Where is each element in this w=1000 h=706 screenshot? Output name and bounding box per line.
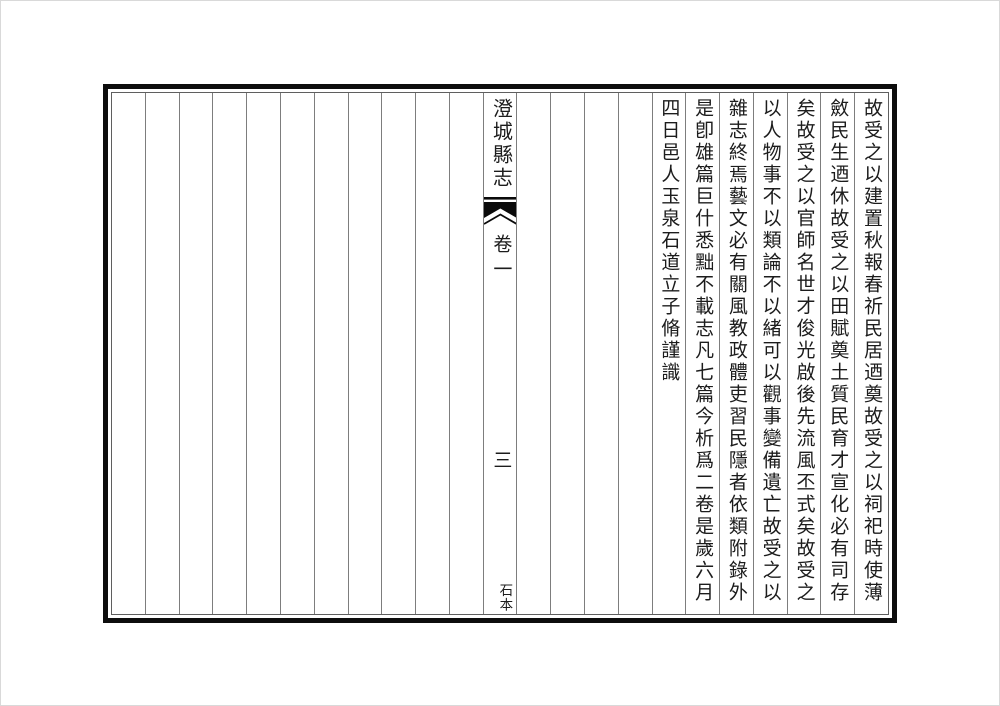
empty-column	[381, 93, 415, 614]
book-title: 澄城縣志	[484, 93, 517, 190]
text-column-1: 故受之以建置秋報春祈民居迺奠故受之以祠祀時使薄	[854, 93, 888, 614]
empty-column	[550, 93, 584, 614]
empty-column	[449, 93, 483, 614]
text-column-6: 是卽雄篇巨什悉黜不載志凡七篇今析爲二卷是歲六月	[685, 93, 719, 614]
empty-column	[618, 93, 652, 614]
empty-column	[280, 93, 314, 614]
empty-column	[212, 93, 246, 614]
empty-column	[584, 93, 618, 614]
empty-column	[112, 93, 145, 614]
empty-column	[145, 93, 179, 614]
text-column-2: 斂民生迺休故受之以田賦奠土質民育才宣化必有司存	[820, 93, 854, 614]
text-column-5: 雜志終焉藝文必有關風教政體吏習民隱者依類附錄外	[719, 93, 753, 614]
empty-column	[415, 93, 449, 614]
edition-note: 石本	[488, 583, 517, 612]
volume-label: 卷一	[484, 234, 517, 284]
fishtail-mark-icon	[484, 197, 517, 231]
empty-column	[314, 93, 348, 614]
empty-column	[179, 93, 213, 614]
text-column-3: 矣故受之以官師名世才俊光啟後先流風丕式矣故受之	[787, 93, 821, 614]
empty-column	[246, 93, 280, 614]
empty-column	[348, 93, 382, 614]
text-column-7: 四日邑人玉泉石道立子脩謹識	[652, 93, 686, 614]
column-grid: 故受之以建置秋報春祈民居迺奠故受之以祠祀時使薄 斂民生迺休故受之以田賦奠土質民育…	[111, 92, 889, 615]
text-column-4: 以人物事不以類論不以緒可以觀事變備遺亡故受之以	[753, 93, 787, 614]
page-number: 三	[484, 450, 517, 469]
centerfold-column: 澄城縣志 卷一 三 石本	[483, 93, 517, 614]
empty-column	[516, 93, 550, 614]
page-outer-border: 故受之以建置秋報春祈民居迺奠故受之以祠祀時使薄 斂民生迺休故受之以田賦奠土質民育…	[103, 84, 897, 623]
scanned-book-page: 故受之以建置秋報春祈民居迺奠故受之以祠祀時使薄 斂民生迺休故受之以田賦奠土質民育…	[0, 0, 1000, 706]
